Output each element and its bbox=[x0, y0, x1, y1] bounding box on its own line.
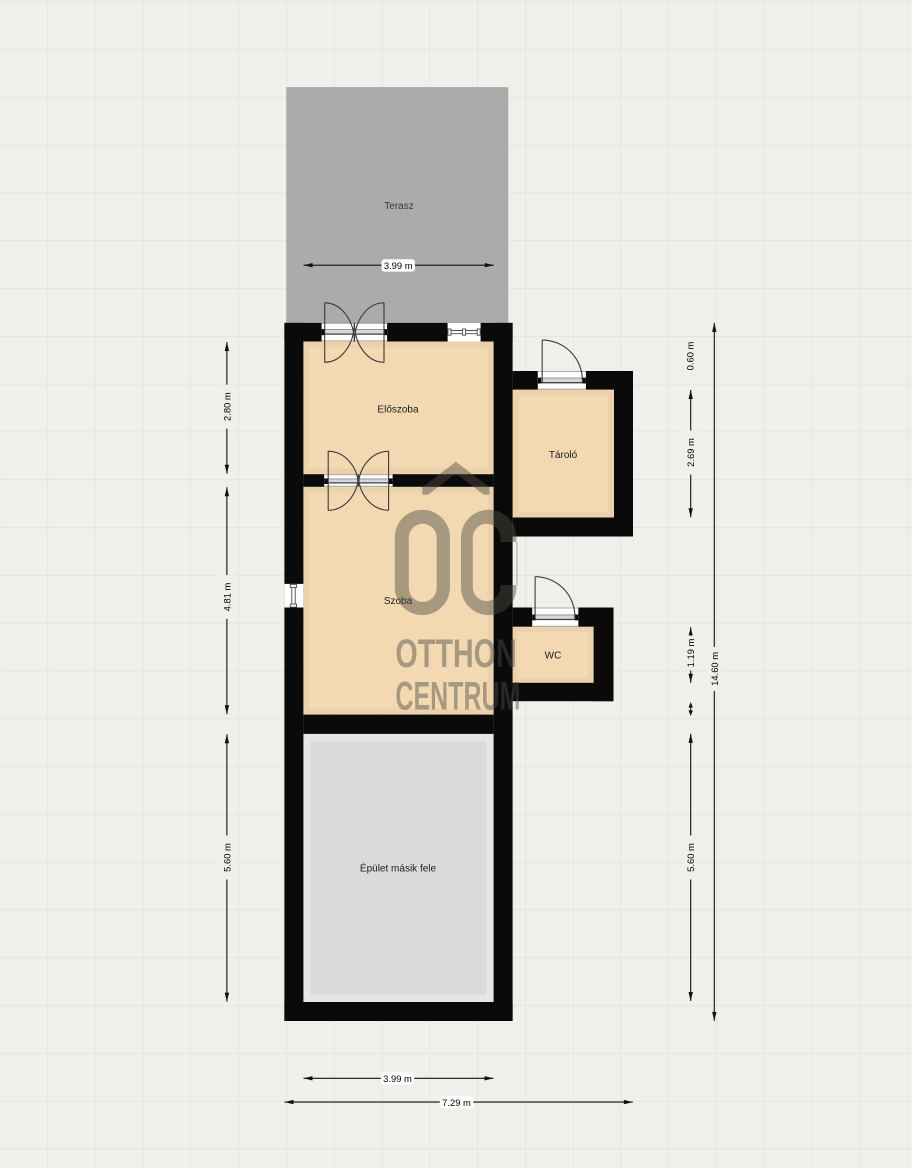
svg-text:WC: WC bbox=[545, 651, 562, 662]
svg-text:OTTHON: OTTHON bbox=[395, 632, 516, 676]
svg-text:1.19 m: 1.19 m bbox=[685, 638, 696, 667]
svg-text:Épület másik fele: Épület másik fele bbox=[360, 862, 437, 875]
svg-text:2.80 m: 2.80 m bbox=[221, 392, 232, 421]
svg-text:5.60 m: 5.60 m bbox=[221, 843, 232, 872]
svg-text:Terasz: Terasz bbox=[384, 201, 413, 212]
svg-text:Tároló: Tároló bbox=[549, 450, 578, 461]
svg-text:3.99 m: 3.99 m bbox=[384, 260, 413, 271]
svg-text:4.81 m: 4.81 m bbox=[221, 582, 232, 611]
svg-text:2.69 m: 2.69 m bbox=[685, 438, 696, 467]
svg-text:CENTRUM: CENTRUM bbox=[395, 675, 520, 719]
svg-text:7.29 m: 7.29 m bbox=[442, 1097, 471, 1108]
svg-text:Előszoba: Előszoba bbox=[377, 405, 419, 416]
svg-text:0.60 m: 0.60 m bbox=[685, 341, 696, 370]
svg-text:5.60 m: 5.60 m bbox=[685, 843, 696, 872]
svg-text:14.60 m: 14.60 m bbox=[709, 652, 720, 686]
svg-text:3.99 m: 3.99 m bbox=[383, 1073, 412, 1084]
